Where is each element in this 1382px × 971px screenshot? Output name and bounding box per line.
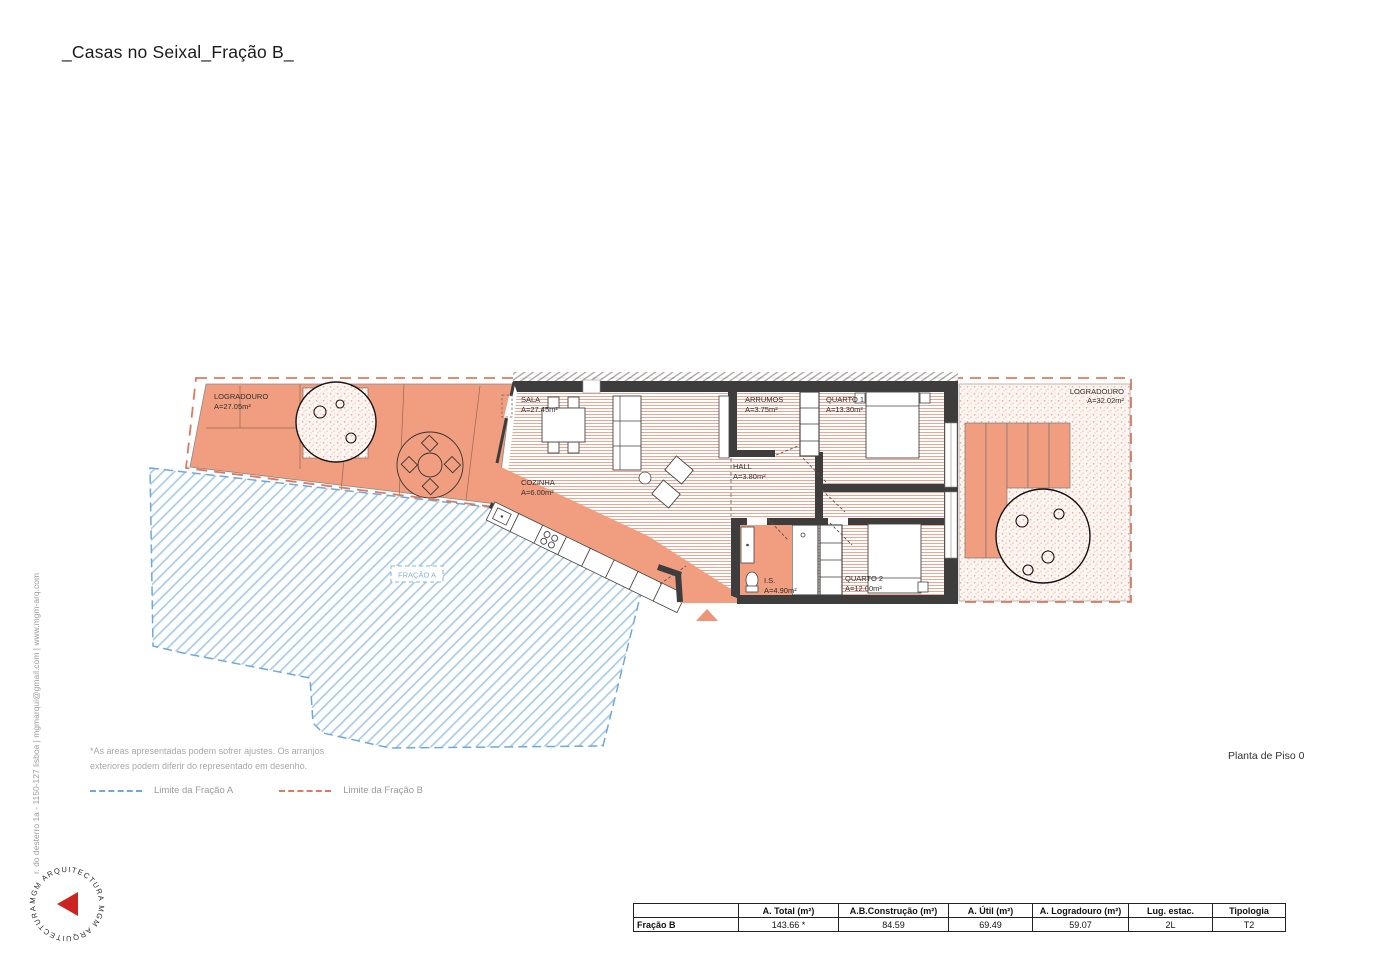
label-is: I.S. <box>764 576 775 585</box>
header-empty <box>634 904 739 918</box>
svg-text:A=27.05m²: A=27.05m² <box>214 402 251 411</box>
cell-a-util: 69.49 <box>949 918 1033 932</box>
toilet-icon <box>746 572 758 592</box>
svg-text:A=6.00m²: A=6.00m² <box>521 488 554 497</box>
sofa-icon <box>613 396 641 470</box>
cabinet-icon <box>719 396 729 458</box>
tree-icon <box>996 489 1090 583</box>
header-tipologia: Tipologia <box>1213 904 1286 918</box>
limite-fracao-b-dash-icon <box>279 790 331 792</box>
header-lug-estac: Lug. estac. <box>1129 904 1213 918</box>
cell-lug-estac: 2L <box>1129 918 1213 932</box>
table-row: Fração B 143.66 * 84.59 69.49 59.07 2L T… <box>634 918 1286 932</box>
header-a-util: A. Útil (m²) <box>949 904 1033 918</box>
cell-a-logradouro: 59.07 <box>1033 918 1129 932</box>
table-header-row: A. Total (m²) A.B.Construção (m²) A. Úti… <box>634 904 1286 918</box>
north-arrow-icon <box>696 609 718 621</box>
header-ab-construcao: A.B.Construção (m²) <box>839 904 949 918</box>
label-arrumos: ARRUMOS <box>745 395 783 404</box>
fracao-a-label: FRAÇÃO A <box>398 571 436 580</box>
area-notes: *As áreas apresentadas podem sofrer ajus… <box>90 744 324 774</box>
garden-table-icon <box>397 432 463 498</box>
legend: Limite da Fração A Limite da Fração B <box>90 785 423 796</box>
svg-text:A=12.00m²: A=12.00m² <box>845 584 882 593</box>
label-logradouro-right: LOGRADOURO <box>1070 387 1124 396</box>
window-icon <box>583 380 600 393</box>
legend-label-fracao-a: Limite da Fração A <box>154 785 233 796</box>
svg-text:A=3.80m²: A=3.80m² <box>733 472 766 481</box>
svg-text:A=27.45m²: A=27.45m² <box>521 405 558 414</box>
label-sala: SALA <box>521 395 540 404</box>
label-quarto2: QUARTO 2 <box>845 574 883 583</box>
cell-ab-construcao: 84.59 <box>839 918 949 932</box>
label-cozinha: COZINHA <box>521 478 555 487</box>
label-hall: HALL <box>733 462 752 471</box>
cell-a-total: 143.66 * <box>739 918 839 932</box>
cell-fracao-b: Fração B <box>634 918 739 932</box>
note-line-1: *As áreas apresentadas podem sofrer ajus… <box>90 744 324 759</box>
site-plan: FRAÇÃO A <box>0 0 1382 971</box>
header-a-logradouro: A. Logradouro (m²) <box>1033 904 1129 918</box>
drawing-sheet: _Casas no Seixal_Fração B_ r. do desterr… <box>0 0 1382 971</box>
svg-text:A=3.75m²: A=3.75m² <box>745 405 778 414</box>
svg-text:A=4.90m²: A=4.90m² <box>764 586 797 595</box>
drawing-title: Planta de Piso 0 <box>1228 750 1304 762</box>
areas-table: A. Total (m²) A.B.Construção (m²) A. Úti… <box>633 903 1286 932</box>
svg-text:A=13.30m²: A=13.30m² <box>826 405 863 414</box>
legend-label-fracao-b: Limite da Fração B <box>343 785 423 796</box>
cell-tipologia: T2 <box>1213 918 1286 932</box>
label-quarto1: QUARTO 1 <box>826 395 864 404</box>
logradouro-right-area <box>959 384 1130 601</box>
bed-quarto1-icon <box>855 392 930 458</box>
label-logradouro-left: LOGRADOURO <box>214 392 268 401</box>
note-line-2: exteriores podem diferir do representado… <box>90 759 324 774</box>
side-table-icon <box>639 472 651 484</box>
svg-text:A=32.02m²: A=32.02m² <box>1087 396 1124 405</box>
tree-icon <box>296 382 376 462</box>
header-a-total: A. Total (m²) <box>739 904 839 918</box>
limite-fracao-a-dash-icon <box>90 790 142 792</box>
